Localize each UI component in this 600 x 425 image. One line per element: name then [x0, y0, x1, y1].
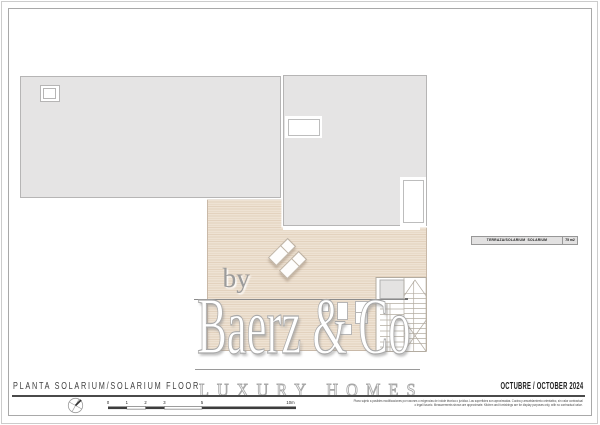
- svg-text:2: 2: [144, 400, 147, 405]
- svg-text:3: 3: [163, 400, 166, 405]
- svg-text:1: 1: [126, 400, 129, 405]
- svg-text:10m: 10m: [286, 400, 295, 405]
- svg-text:0: 0: [107, 400, 110, 405]
- svg-text:5: 5: [201, 400, 204, 405]
